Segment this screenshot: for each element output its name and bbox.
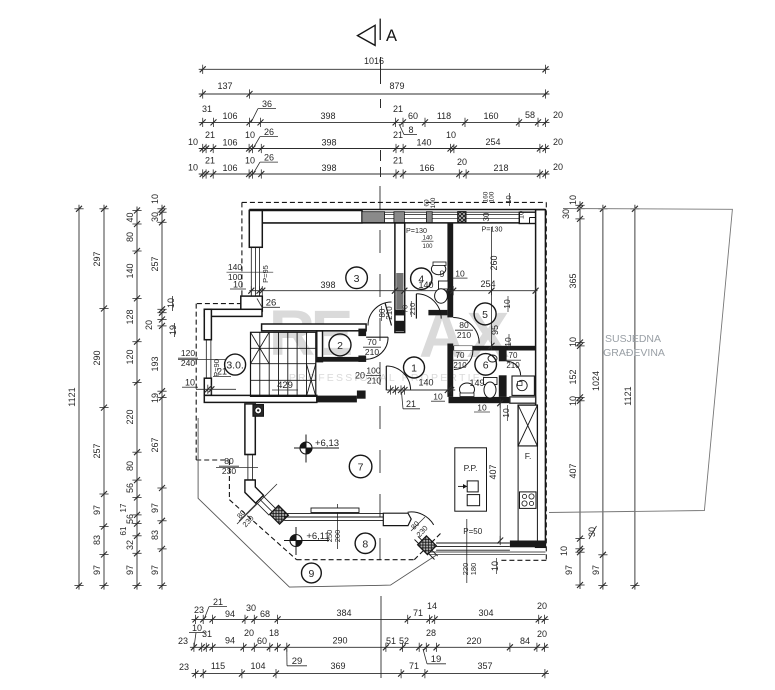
svg-text:104: 104 (250, 661, 265, 671)
svg-text:21: 21 (393, 104, 403, 114)
svg-text:10: 10 (185, 378, 195, 388)
svg-text:149: 149 (469, 378, 484, 388)
svg-text:19: 19 (150, 393, 160, 403)
svg-text:3: 3 (354, 273, 360, 285)
svg-text:52: 52 (399, 636, 409, 646)
svg-text:10: 10 (192, 623, 202, 633)
svg-text:97: 97 (92, 565, 102, 575)
svg-text:152: 152 (568, 369, 578, 384)
svg-text:290: 290 (332, 636, 347, 646)
svg-text:9: 9 (439, 269, 444, 279)
svg-text:30: 30 (150, 212, 160, 222)
svg-text:10: 10 (477, 403, 487, 413)
svg-text:254: 254 (480, 279, 495, 289)
svg-text:140: 140 (418, 378, 433, 388)
svg-text:97: 97 (591, 565, 601, 575)
svg-text:140: 140 (125, 263, 135, 278)
svg-text:1016: 1016 (364, 56, 384, 66)
svg-text:10: 10 (568, 396, 578, 406)
svg-text:210: 210 (506, 361, 520, 370)
svg-text:P=95: P=95 (261, 265, 270, 283)
svg-text:PROFESSIONAL PROPERTIES: PROFESSIONAL PROPERTIES (289, 372, 491, 384)
svg-text:20: 20 (553, 110, 563, 120)
svg-text:21: 21 (393, 156, 403, 166)
svg-text:384: 384 (336, 608, 351, 618)
svg-text:20: 20 (537, 629, 547, 639)
svg-text:71: 71 (413, 608, 423, 618)
svg-text:80: 80 (125, 232, 135, 242)
svg-text:1121: 1121 (623, 386, 633, 405)
svg-text:10: 10 (504, 195, 513, 203)
svg-text:369: 369 (330, 661, 345, 671)
svg-text:56: 56 (125, 514, 135, 524)
svg-text:210: 210 (408, 303, 417, 316)
svg-text:97: 97 (92, 505, 102, 515)
svg-text:94: 94 (225, 609, 235, 619)
svg-text:80: 80 (125, 461, 135, 471)
svg-text:365: 365 (568, 273, 578, 288)
svg-text:F.: F. (525, 451, 532, 461)
svg-text:19: 19 (168, 325, 178, 335)
svg-text:30: 30 (561, 209, 571, 219)
svg-text:97: 97 (150, 565, 160, 575)
svg-text:210: 210 (367, 376, 381, 386)
svg-text:10: 10 (559, 546, 569, 556)
svg-text:10: 10 (188, 163, 198, 173)
svg-text:71: 71 (409, 661, 419, 671)
svg-text:20: 20 (553, 162, 563, 172)
svg-text:20: 20 (355, 371, 365, 381)
svg-text:20: 20 (144, 320, 154, 330)
svg-text:4: 4 (418, 274, 424, 286)
svg-text:32: 32 (125, 540, 135, 550)
svg-text:140: 140 (422, 236, 433, 242)
svg-text:40: 40 (125, 212, 135, 222)
svg-text:60: 60 (408, 111, 418, 121)
svg-text:218: 218 (493, 163, 508, 173)
svg-text:180: 180 (469, 563, 478, 576)
svg-text:118: 118 (437, 111, 451, 121)
svg-text:97: 97 (564, 565, 574, 575)
svg-text:106: 106 (222, 111, 237, 121)
svg-text:267: 267 (150, 437, 160, 452)
svg-text:10: 10 (446, 130, 456, 140)
svg-text:26: 26 (264, 127, 274, 137)
svg-text:58: 58 (525, 110, 535, 120)
svg-text:21: 21 (406, 399, 416, 409)
svg-text:1121: 1121 (67, 387, 77, 406)
svg-text:28: 28 (426, 628, 436, 638)
svg-text:83: 83 (150, 530, 160, 540)
svg-text:10: 10 (455, 269, 465, 279)
svg-text:70: 70 (367, 337, 377, 347)
svg-text:210: 210 (365, 347, 379, 357)
svg-text:140: 140 (416, 138, 431, 148)
svg-text:210: 210 (457, 330, 471, 340)
svg-text:94: 94 (225, 636, 235, 646)
svg-text:10: 10 (568, 195, 578, 205)
svg-text:97: 97 (150, 503, 160, 513)
svg-text:68: 68 (260, 609, 270, 619)
svg-text:P=50: P=50 (463, 527, 482, 536)
svg-text:29: 29 (292, 656, 303, 667)
svg-text:100: 100 (430, 197, 437, 208)
svg-text:8: 8 (408, 125, 413, 135)
svg-text:10: 10 (245, 156, 255, 166)
svg-text:210: 210 (453, 361, 467, 370)
svg-text:10: 10 (245, 130, 255, 140)
svg-text:30: 30 (246, 603, 256, 613)
svg-text:257: 257 (92, 443, 102, 458)
svg-text:398: 398 (321, 163, 336, 173)
svg-text:10: 10 (502, 299, 512, 309)
svg-text:21: 21 (205, 130, 215, 140)
svg-text:20: 20 (553, 137, 563, 147)
svg-text:10: 10 (150, 194, 160, 204)
svg-text:407: 407 (568, 463, 578, 478)
svg-text:20: 20 (244, 628, 254, 638)
svg-text:10: 10 (568, 337, 578, 347)
svg-text:160: 160 (483, 111, 498, 121)
svg-text:10: 10 (501, 408, 511, 418)
svg-text:60: 60 (257, 636, 267, 646)
svg-text:2: 2 (337, 340, 343, 352)
svg-text:31: 31 (202, 104, 212, 114)
svg-text:100: 100 (422, 244, 433, 250)
svg-text:290: 290 (92, 350, 102, 365)
svg-text:70: 70 (456, 351, 465, 360)
svg-text:26: 26 (266, 298, 277, 309)
svg-text:23: 23 (178, 636, 188, 646)
svg-text:260: 260 (489, 255, 499, 270)
svg-text:9: 9 (308, 568, 314, 580)
svg-text:7: 7 (358, 462, 364, 474)
svg-text:P.P.: P.P. (464, 463, 478, 473)
svg-text:220: 220 (466, 636, 481, 646)
svg-text:80: 80 (224, 456, 234, 466)
svg-text:140: 140 (228, 262, 242, 272)
svg-text:56: 56 (125, 483, 135, 493)
svg-text:10: 10 (490, 561, 500, 571)
svg-text:+6,13: +6,13 (315, 438, 339, 449)
svg-text:297: 297 (92, 251, 102, 266)
svg-text:1024: 1024 (591, 371, 601, 391)
svg-text:14: 14 (427, 601, 437, 611)
svg-text:357: 357 (477, 661, 492, 671)
svg-text:19: 19 (431, 654, 442, 665)
svg-text:31: 31 (202, 629, 212, 639)
svg-text:879: 879 (389, 81, 404, 91)
svg-text:A: A (386, 27, 397, 45)
svg-text:36: 36 (262, 99, 272, 109)
svg-text:20: 20 (457, 157, 467, 167)
svg-text:+6,11: +6,11 (306, 531, 329, 542)
svg-text:70: 70 (509, 351, 518, 360)
svg-text:100: 100 (489, 191, 496, 202)
svg-text:220: 220 (125, 409, 135, 424)
svg-text:429: 429 (277, 380, 293, 391)
svg-text:106: 106 (222, 163, 237, 173)
svg-text:100: 100 (366, 366, 380, 376)
svg-text:95: 95 (490, 325, 500, 335)
svg-text:254: 254 (485, 137, 500, 147)
svg-text:21: 21 (205, 156, 215, 166)
svg-text:398: 398 (320, 280, 335, 290)
svg-text:17: 17 (119, 503, 128, 512)
svg-text:P=130: P=130 (482, 225, 503, 234)
svg-text:8: 8 (362, 538, 368, 550)
svg-text:P=130: P=130 (406, 226, 427, 235)
svg-text:51: 51 (386, 636, 396, 646)
svg-text:106: 106 (222, 138, 237, 148)
svg-text:26: 26 (264, 153, 274, 163)
svg-text:20: 20 (537, 601, 547, 611)
svg-text:18: 18 (269, 628, 279, 638)
svg-text:407: 407 (488, 464, 498, 479)
svg-text:84: 84 (520, 636, 530, 646)
svg-text:10: 10 (503, 337, 513, 347)
svg-text:GRAĐEVINA: GRAĐEVINA (603, 347, 665, 359)
svg-text:10: 10 (166, 298, 176, 308)
svg-text:120: 120 (181, 348, 195, 358)
svg-text:23: 23 (179, 662, 189, 672)
svg-text:6: 6 (483, 359, 489, 371)
svg-text:97: 97 (125, 565, 135, 575)
svg-text:257: 257 (150, 256, 160, 271)
svg-text:10: 10 (233, 280, 243, 290)
svg-text:3.0.: 3.0. (226, 360, 244, 372)
svg-text:10: 10 (188, 137, 198, 147)
svg-text:5: 5 (482, 309, 488, 321)
svg-text:200: 200 (333, 530, 342, 543)
svg-text:21: 21 (393, 130, 403, 140)
svg-text:166: 166 (419, 163, 434, 173)
svg-text:120: 120 (125, 349, 135, 364)
svg-text:210: 210 (385, 306, 394, 320)
svg-text:61: 61 (119, 526, 128, 535)
svg-text:128: 128 (125, 309, 135, 324)
svg-text:30: 30 (482, 212, 491, 221)
svg-text:21: 21 (213, 597, 223, 607)
svg-text:10: 10 (517, 211, 526, 219)
svg-text:83: 83 (92, 535, 102, 545)
svg-text:193: 193 (150, 356, 160, 371)
svg-text:1: 1 (411, 363, 417, 375)
svg-text:398: 398 (320, 111, 335, 121)
svg-text:10: 10 (433, 392, 443, 402)
svg-text:137: 137 (217, 81, 232, 91)
svg-text:SUSJEDNA: SUSJEDNA (605, 333, 661, 345)
svg-text:304: 304 (478, 608, 493, 618)
svg-text:398: 398 (321, 138, 336, 148)
svg-text:23: 23 (194, 605, 204, 615)
svg-text:80: 80 (459, 320, 469, 330)
svg-text:115: 115 (211, 661, 225, 671)
